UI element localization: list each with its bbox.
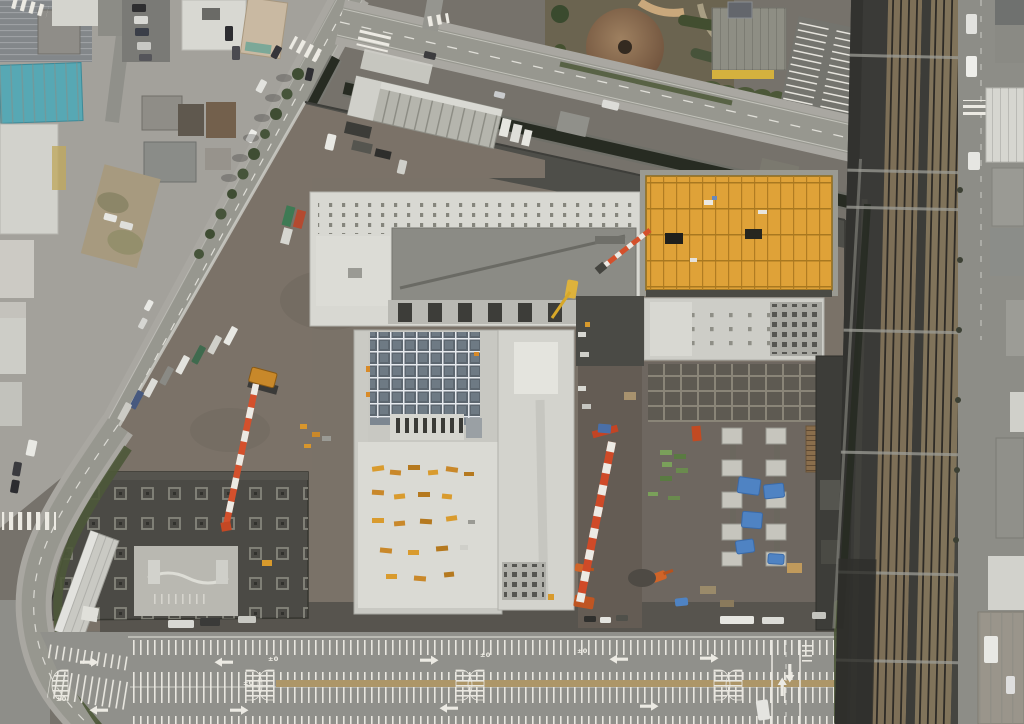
parked-car [135, 28, 149, 36]
white-building [0, 124, 58, 234]
container-small [787, 563, 802, 573]
yellow-hatch-parking [52, 146, 66, 190]
car-on-street [968, 152, 980, 170]
rooftop-unit [728, 2, 752, 18]
tree [282, 89, 293, 100]
level-mark: ±0 [56, 695, 67, 703]
material [548, 594, 554, 600]
boom-tip [220, 521, 231, 532]
house-roof [144, 142, 196, 182]
deck-debris [690, 258, 697, 262]
skylight-grid-roof [370, 332, 480, 418]
parked-car [139, 54, 152, 61]
parked-truck [984, 636, 998, 663]
building-gap-shadow [646, 290, 832, 297]
stall-row [130, 687, 852, 703]
material [366, 392, 370, 397]
white-building [0, 382, 22, 426]
parked-van [812, 612, 826, 619]
material [578, 386, 586, 391]
rooftop-unit [202, 8, 220, 20]
building [995, 0, 1024, 25]
deck-opening [665, 233, 683, 244]
material [474, 352, 479, 356]
small-building [52, 0, 98, 26]
spoil-heap [628, 569, 656, 587]
car-on-street [966, 14, 977, 34]
building [996, 438, 1024, 538]
building [990, 228, 1024, 276]
white-building [0, 318, 26, 374]
tree [248, 148, 260, 160]
tree [551, 5, 569, 23]
equipment-red [691, 426, 701, 442]
machine-blue [598, 423, 612, 433]
parked-car [1006, 676, 1015, 694]
deck-debris [712, 196, 717, 200]
white-commercial-roof [182, 0, 246, 50]
rooftop-unit [466, 418, 482, 438]
level-mark: ±0 [243, 679, 254, 687]
material [585, 322, 590, 327]
rooftop-unit [348, 268, 362, 278]
site-office-hut [81, 606, 99, 623]
building-center-east [498, 330, 574, 610]
dark-roof-house [178, 104, 204, 136]
beam-grid [648, 364, 834, 422]
parked-car [132, 4, 146, 12]
level-mark: ±0 [480, 651, 491, 659]
panel-grid [772, 304, 820, 354]
slab-panel [148, 560, 160, 584]
building-east-white [644, 298, 824, 360]
median-strip [276, 680, 852, 687]
yellow-signage-band [712, 70, 774, 79]
parked-truck [168, 620, 194, 628]
parked-truck [200, 618, 220, 626]
structure-bay [820, 480, 842, 510]
slab-hatch [150, 594, 210, 604]
building-center-west [354, 330, 502, 614]
tree [227, 189, 237, 199]
east-street-block [953, 0, 1024, 724]
tree [260, 129, 270, 139]
material [578, 332, 586, 337]
car-on-street [966, 56, 977, 77]
top-edge-beam [88, 472, 308, 480]
stall-row [130, 716, 852, 724]
white-building [0, 240, 34, 298]
roof-seams [986, 88, 1024, 162]
parked-truck [762, 617, 784, 624]
driveway-hatch [802, 642, 812, 664]
tree [194, 249, 204, 259]
material [582, 404, 591, 409]
crosswalk [2, 512, 56, 530]
wedge [468, 670, 484, 700]
dome-center-vent [618, 40, 632, 54]
material [366, 366, 370, 372]
parked-car [584, 616, 596, 622]
parked-car [225, 26, 233, 41]
roof-pale-zone [514, 342, 558, 394]
parked-car [137, 42, 151, 50]
tree [270, 108, 282, 120]
house-roof [205, 148, 231, 170]
deck-debris [758, 210, 767, 214]
unit-grid [504, 564, 544, 598]
brown-roof-house [206, 102, 236, 138]
corridor-shadow [835, 559, 877, 724]
material [580, 352, 589, 357]
warehouse-ridges [978, 612, 1024, 724]
parked-car [134, 16, 148, 24]
parked-truck [238, 616, 256, 623]
wedge [258, 670, 274, 700]
teal-roof-ridges [0, 63, 83, 124]
building [1006, 300, 1024, 356]
roof-hatch [595, 236, 625, 244]
pallet [700, 586, 716, 594]
pallet [720, 600, 734, 607]
slab-panel [216, 560, 228, 584]
aerial-scene: ±0 ±0 ±0 ±0 ±0 [0, 0, 1024, 724]
roof-west-bay [650, 302, 692, 356]
tree [238, 169, 249, 180]
tree [205, 229, 215, 239]
level-mark: ±0 [268, 655, 279, 663]
building-orange-formwork [640, 170, 838, 297]
parked-truck [720, 616, 754, 624]
building [992, 168, 1024, 226]
deck-debris [704, 200, 713, 205]
parked-car [232, 46, 240, 60]
parked-car [616, 615, 628, 621]
white-building [988, 556, 1024, 610]
parked-car [600, 617, 611, 623]
tree [292, 68, 304, 80]
deck-opening [745, 229, 762, 239]
railway-corridor [832, 0, 980, 724]
level-mark: ±0 [577, 647, 588, 655]
stall-row [130, 640, 852, 655]
building [995, 25, 1024, 63]
tree [216, 209, 227, 220]
aerial-photo: ±0 ±0 ±0 ±0 ±0 [0, 0, 1024, 724]
house-roof [142, 96, 182, 130]
dirt-patch [190, 408, 270, 452]
material [624, 392, 636, 400]
equipment [262, 560, 272, 566]
wedge [726, 670, 742, 700]
building [1010, 392, 1024, 432]
